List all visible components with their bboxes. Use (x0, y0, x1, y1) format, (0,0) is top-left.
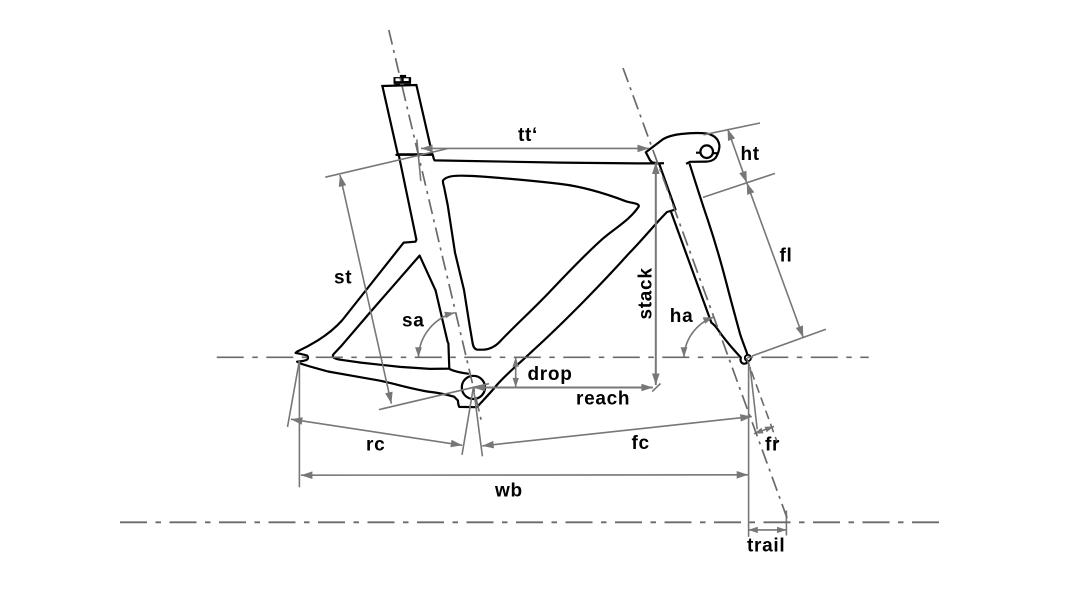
svg-text:drop: drop (528, 364, 573, 385)
svg-text:rc: rc (366, 435, 385, 456)
svg-text:wb: wb (494, 481, 523, 502)
svg-text:stack: stack (636, 267, 657, 319)
svg-text:fr: fr (765, 435, 780, 456)
svg-text:ht: ht (741, 144, 760, 165)
svg-text:ha: ha (670, 306, 694, 327)
svg-text:sa: sa (402, 311, 425, 332)
svg-text:fc: fc (632, 433, 650, 454)
svg-text:trail: trail (747, 536, 785, 557)
svg-text:tt‘: tt‘ (518, 125, 538, 146)
svg-text:st: st (334, 268, 352, 289)
svg-text:reach: reach (576, 388, 630, 409)
svg-text:fl: fl (780, 246, 793, 267)
